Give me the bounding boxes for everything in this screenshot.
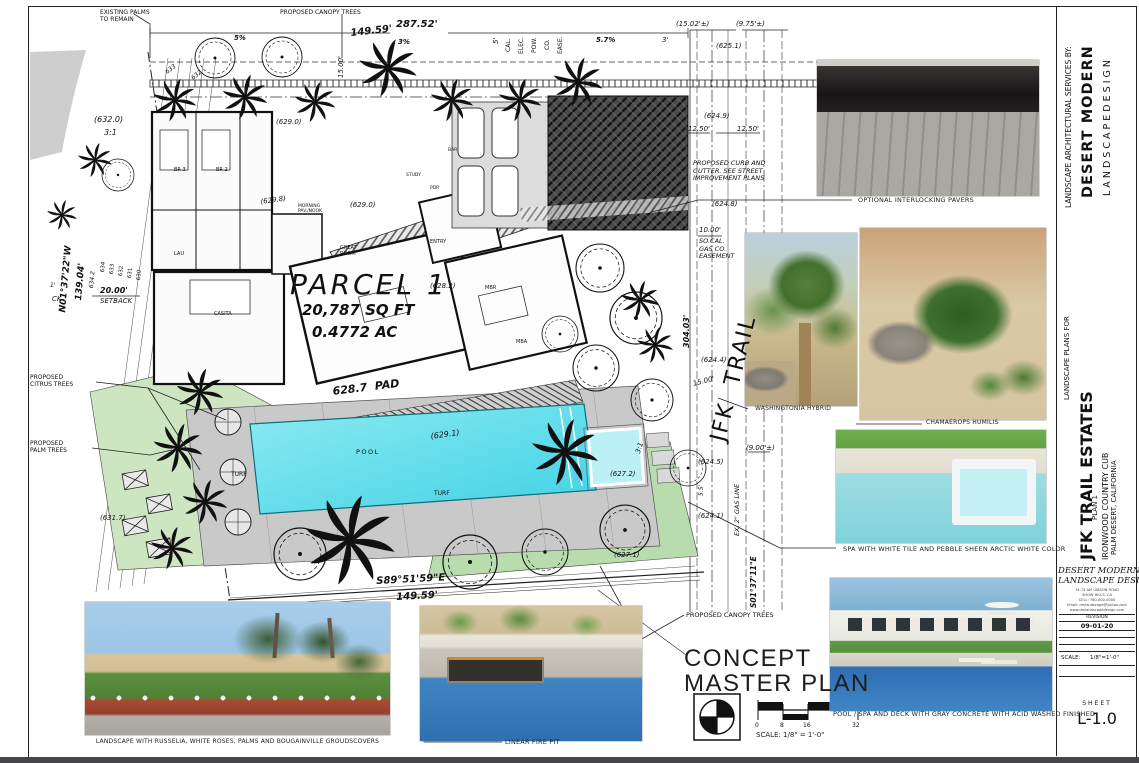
sheet-border [28, 6, 1137, 758]
plan-sheet: OPTIONAL INTERLOCKING PAVERS WASHINGTONI… [0, 0, 1139, 763]
sheet-bottom-edge [0, 757, 1139, 763]
title-strip-divider [1056, 6, 1057, 756]
